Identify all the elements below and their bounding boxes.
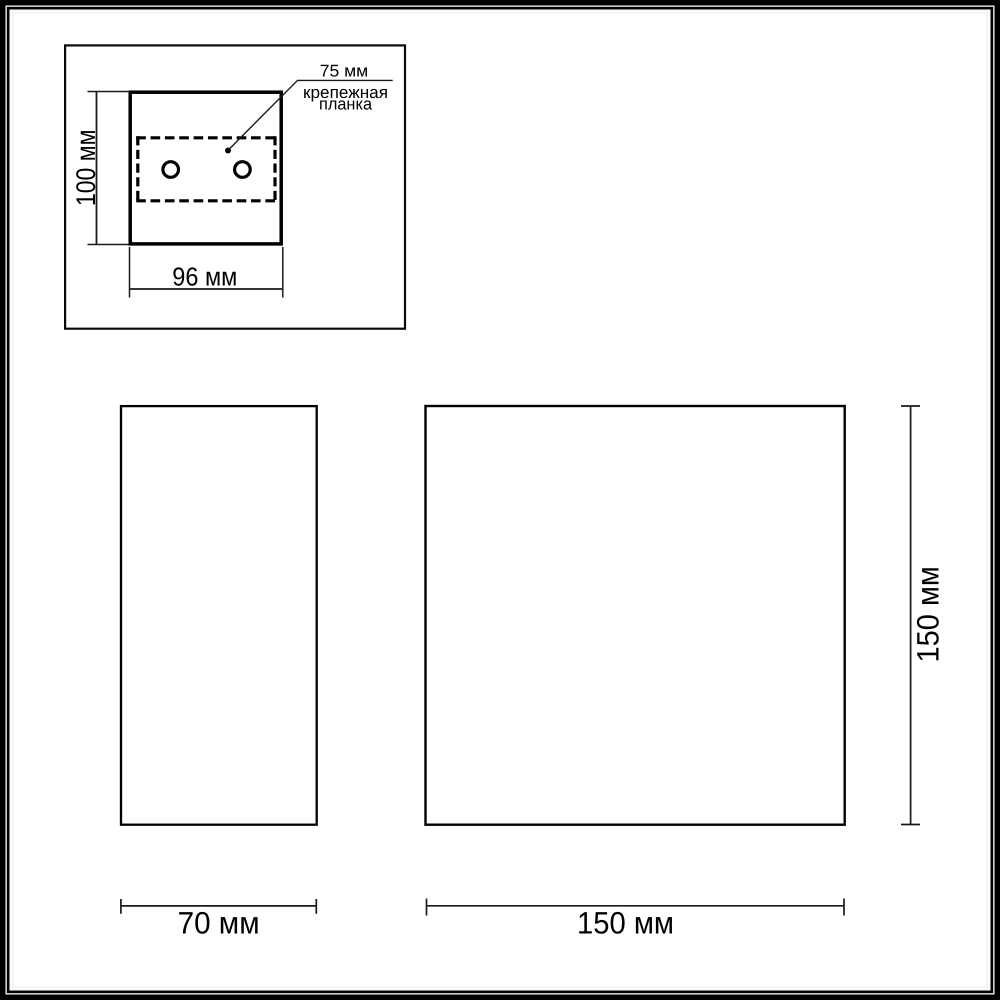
svg-text:100 мм: 100 мм	[71, 130, 101, 207]
svg-text:75 мм: 75 мм	[320, 62, 369, 81]
svg-text:150 мм: 150 мм	[577, 906, 674, 941]
svg-text:150 мм: 150 мм	[911, 566, 946, 662]
svg-text:планка: планка	[319, 94, 373, 113]
svg-text:96 мм: 96 мм	[172, 262, 237, 292]
svg-text:70 мм: 70 мм	[178, 906, 260, 941]
